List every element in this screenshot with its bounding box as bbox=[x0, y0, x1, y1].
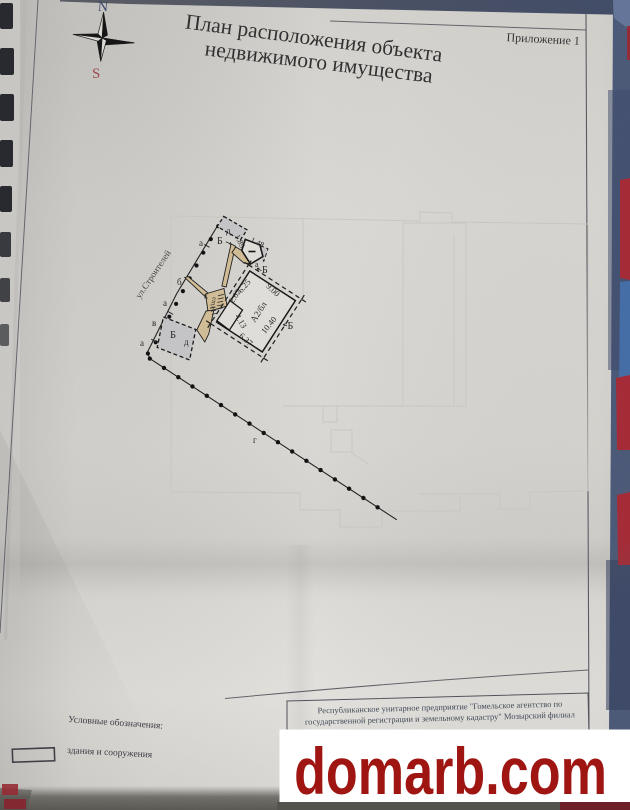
svg-text:domarb.com: domarb.com bbox=[294, 734, 607, 808]
